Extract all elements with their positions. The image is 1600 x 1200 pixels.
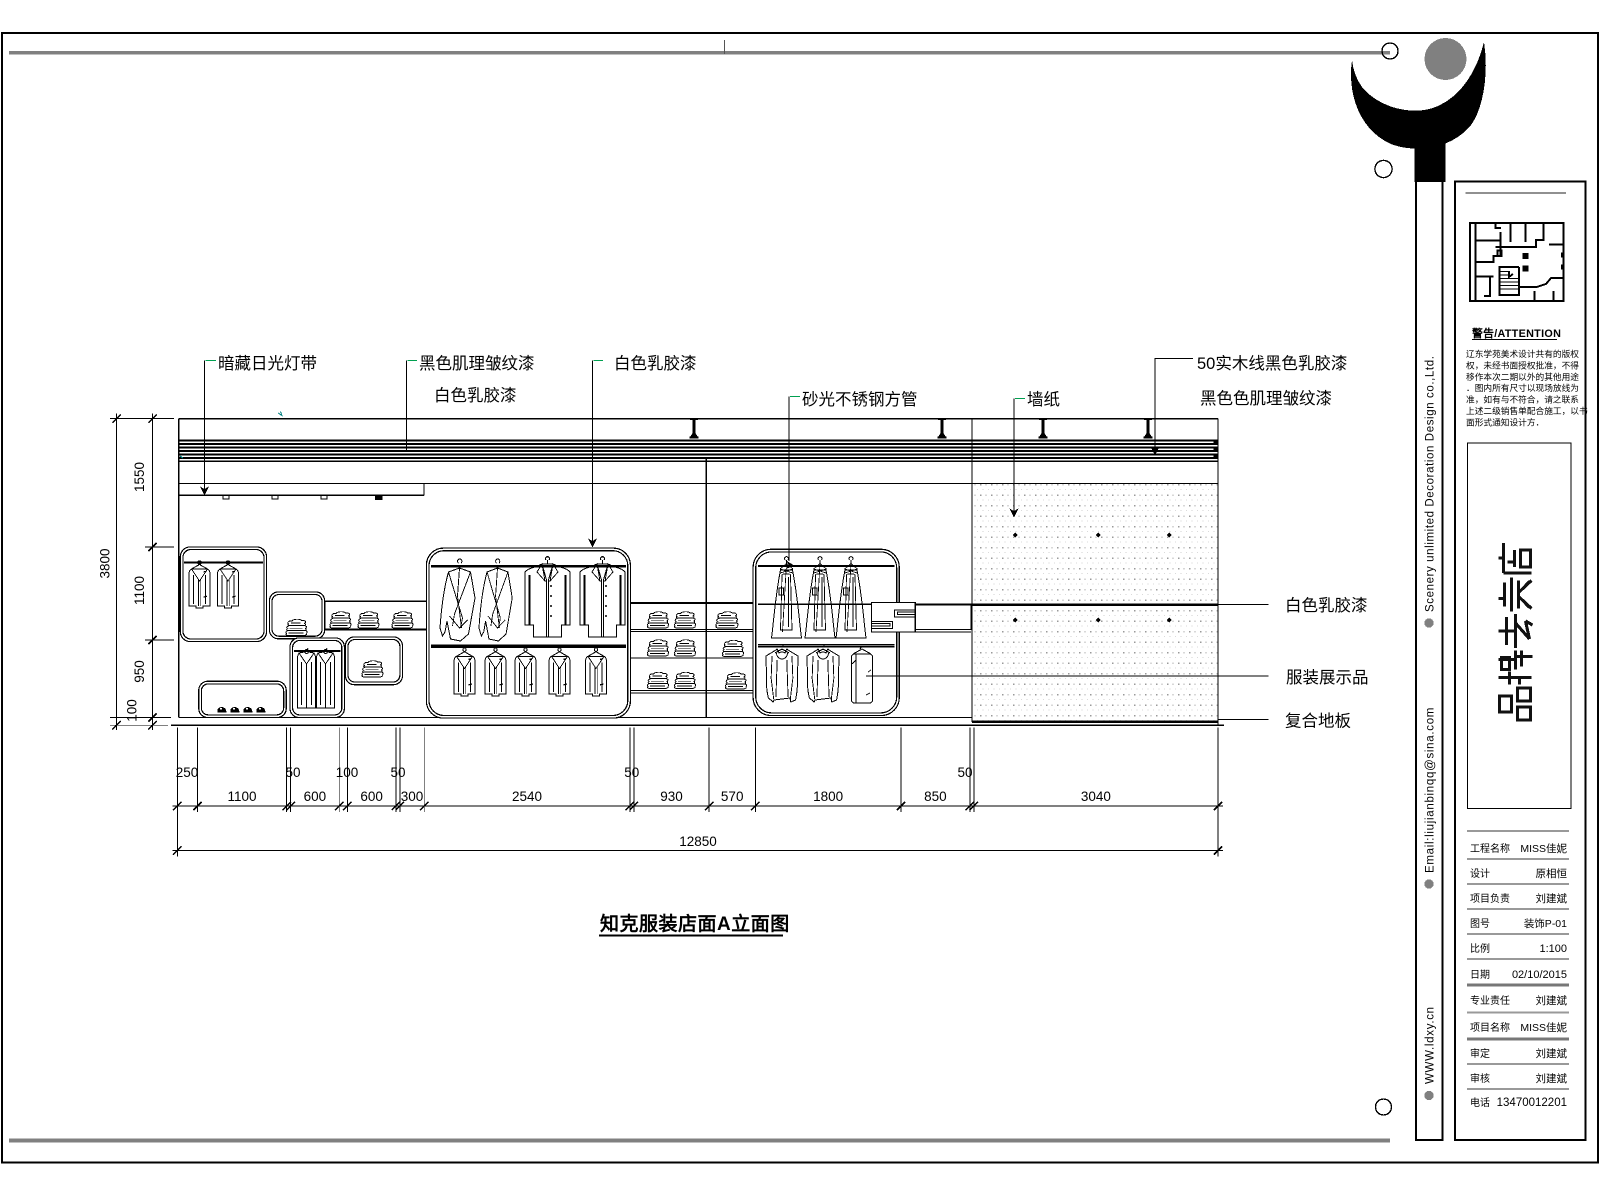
svg-text:570: 570 [721,789,744,804]
svg-text:13470012201: 13470012201 [1497,1097,1567,1109]
svg-text:暗藏日光灯带: 暗藏日光灯带 [218,354,317,373]
svg-text:1550: 1550 [132,462,147,492]
svg-text:2540: 2540 [512,789,542,804]
svg-text:1100: 1100 [228,789,257,804]
svg-text:50: 50 [285,765,300,780]
svg-text:50: 50 [390,765,405,780]
svg-text:02/10/2015: 02/10/2015 [1512,969,1567,981]
svg-text:白色乳胶漆: 白色乳胶漆 [434,386,517,405]
svg-text:Scenery unlimited Decoration D: Scenery unlimited Decoration Design co.,… [1425,355,1437,612]
svg-text:950: 950 [132,660,147,683]
svg-text:图号: 图号 [1470,918,1490,930]
svg-text:电话: 电话 [1470,1096,1490,1109]
svg-text:项目名称: 项目名称 [1470,1021,1510,1034]
svg-text:100: 100 [336,765,359,780]
svg-text:300: 300 [401,789,424,804]
svg-text:墙纸: 墙纸 [1027,390,1060,409]
svg-text:50: 50 [957,765,972,780]
svg-text:准，如有与不符合，请之联系: 准，如有与不符合，请之联系 [1466,394,1579,405]
svg-text:面形式通知设计方．: 面形式通知设计方． [1466,416,1544,427]
svg-text:日期: 日期 [1470,969,1490,981]
svg-text:砂光不锈钢方管: 砂光不锈钢方管 [802,390,918,409]
svg-text:知克服装店面A立面图: 知克服装店面A立面图 [600,912,790,935]
svg-text:白色乳胶漆: 白色乳胶漆 [614,354,697,373]
svg-text:专业责任: 专业责任 [1470,994,1510,1007]
svg-text:黑色色肌理皱纹漆: 黑色色肌理皱纹漆 [1200,389,1332,408]
svg-text:WWW.ldxy.cn: WWW.ldxy.cn [1425,1006,1437,1084]
svg-text:上述二级销售单配合施工，以书: 上述二级销售单配合施工，以书 [1466,405,1588,416]
svg-text:MISS佳妮: MISS佳妮 [1520,842,1567,855]
svg-text:审核: 审核 [1470,1072,1490,1085]
svg-text:警告/ATTENTION: 警告/ATTENTION [1471,326,1561,340]
svg-text:1:100: 1:100 [1539,943,1567,955]
svg-text:服装展示品: 服装展示品 [1286,668,1369,687]
svg-text:复合地板: 复合地板 [1285,712,1351,731]
svg-text:辽东学苑美术设计共有的版权: 辽东学苑美术设计共有的版权 [1466,348,1579,359]
svg-text:白色乳胶漆: 白色乳胶漆 [1285,596,1368,615]
svg-text:3800: 3800 [98,548,113,578]
svg-text:刘建斌: 刘建斌 [1536,1072,1568,1085]
svg-text:审定: 审定 [1470,1047,1490,1060]
svg-text:刘建斌: 刘建斌 [1536,892,1568,905]
svg-text:移作本次二期以外的其他用途: 移作本次二期以外的其他用途 [1466,371,1579,382]
svg-text:黑色肌理皱纹漆: 黑色肌理皱纹漆 [419,354,535,373]
svg-text:600: 600 [304,789,327,804]
svg-text:850: 850 [924,789,947,804]
svg-text:刘建斌: 刘建斌 [1536,994,1568,1007]
svg-text:装饰P-01: 装饰P-01 [1524,917,1567,930]
svg-text:．图内所有尺寸以现场放线为: ．图内所有尺寸以现场放线为 [1466,382,1579,393]
svg-text:930: 930 [660,789,683,804]
svg-text:600: 600 [360,789,383,804]
svg-text:3040: 3040 [1081,789,1111,804]
svg-text:1100: 1100 [132,576,147,605]
svg-text:比例: 比例 [1470,942,1490,955]
svg-text:250: 250 [176,765,199,780]
svg-text:12850: 12850 [679,834,717,849]
svg-text:1800: 1800 [813,789,843,804]
svg-text:权，未经书面授权批准，不得: 权，未经书面授权批准，不得 [1466,359,1579,370]
svg-text:设计: 设计 [1470,867,1490,880]
svg-text:MISS佳妮: MISS佳妮 [1520,1021,1567,1034]
svg-text:刘建斌: 刘建斌 [1536,1047,1568,1060]
svg-text:工程名称: 工程名称 [1470,842,1510,855]
svg-text:Email:liujianbinqq@sina.com: Email:liujianbinqq@sina.com [1425,707,1437,873]
svg-text:项目负责: 项目负责 [1470,892,1510,905]
svg-text:50实木线黑色乳胶漆: 50实木线黑色乳胶漆 [1197,354,1347,373]
svg-text:100: 100 [125,699,140,722]
svg-text:50: 50 [624,765,639,780]
svg-text:原相恒: 原相恒 [1536,867,1568,880]
